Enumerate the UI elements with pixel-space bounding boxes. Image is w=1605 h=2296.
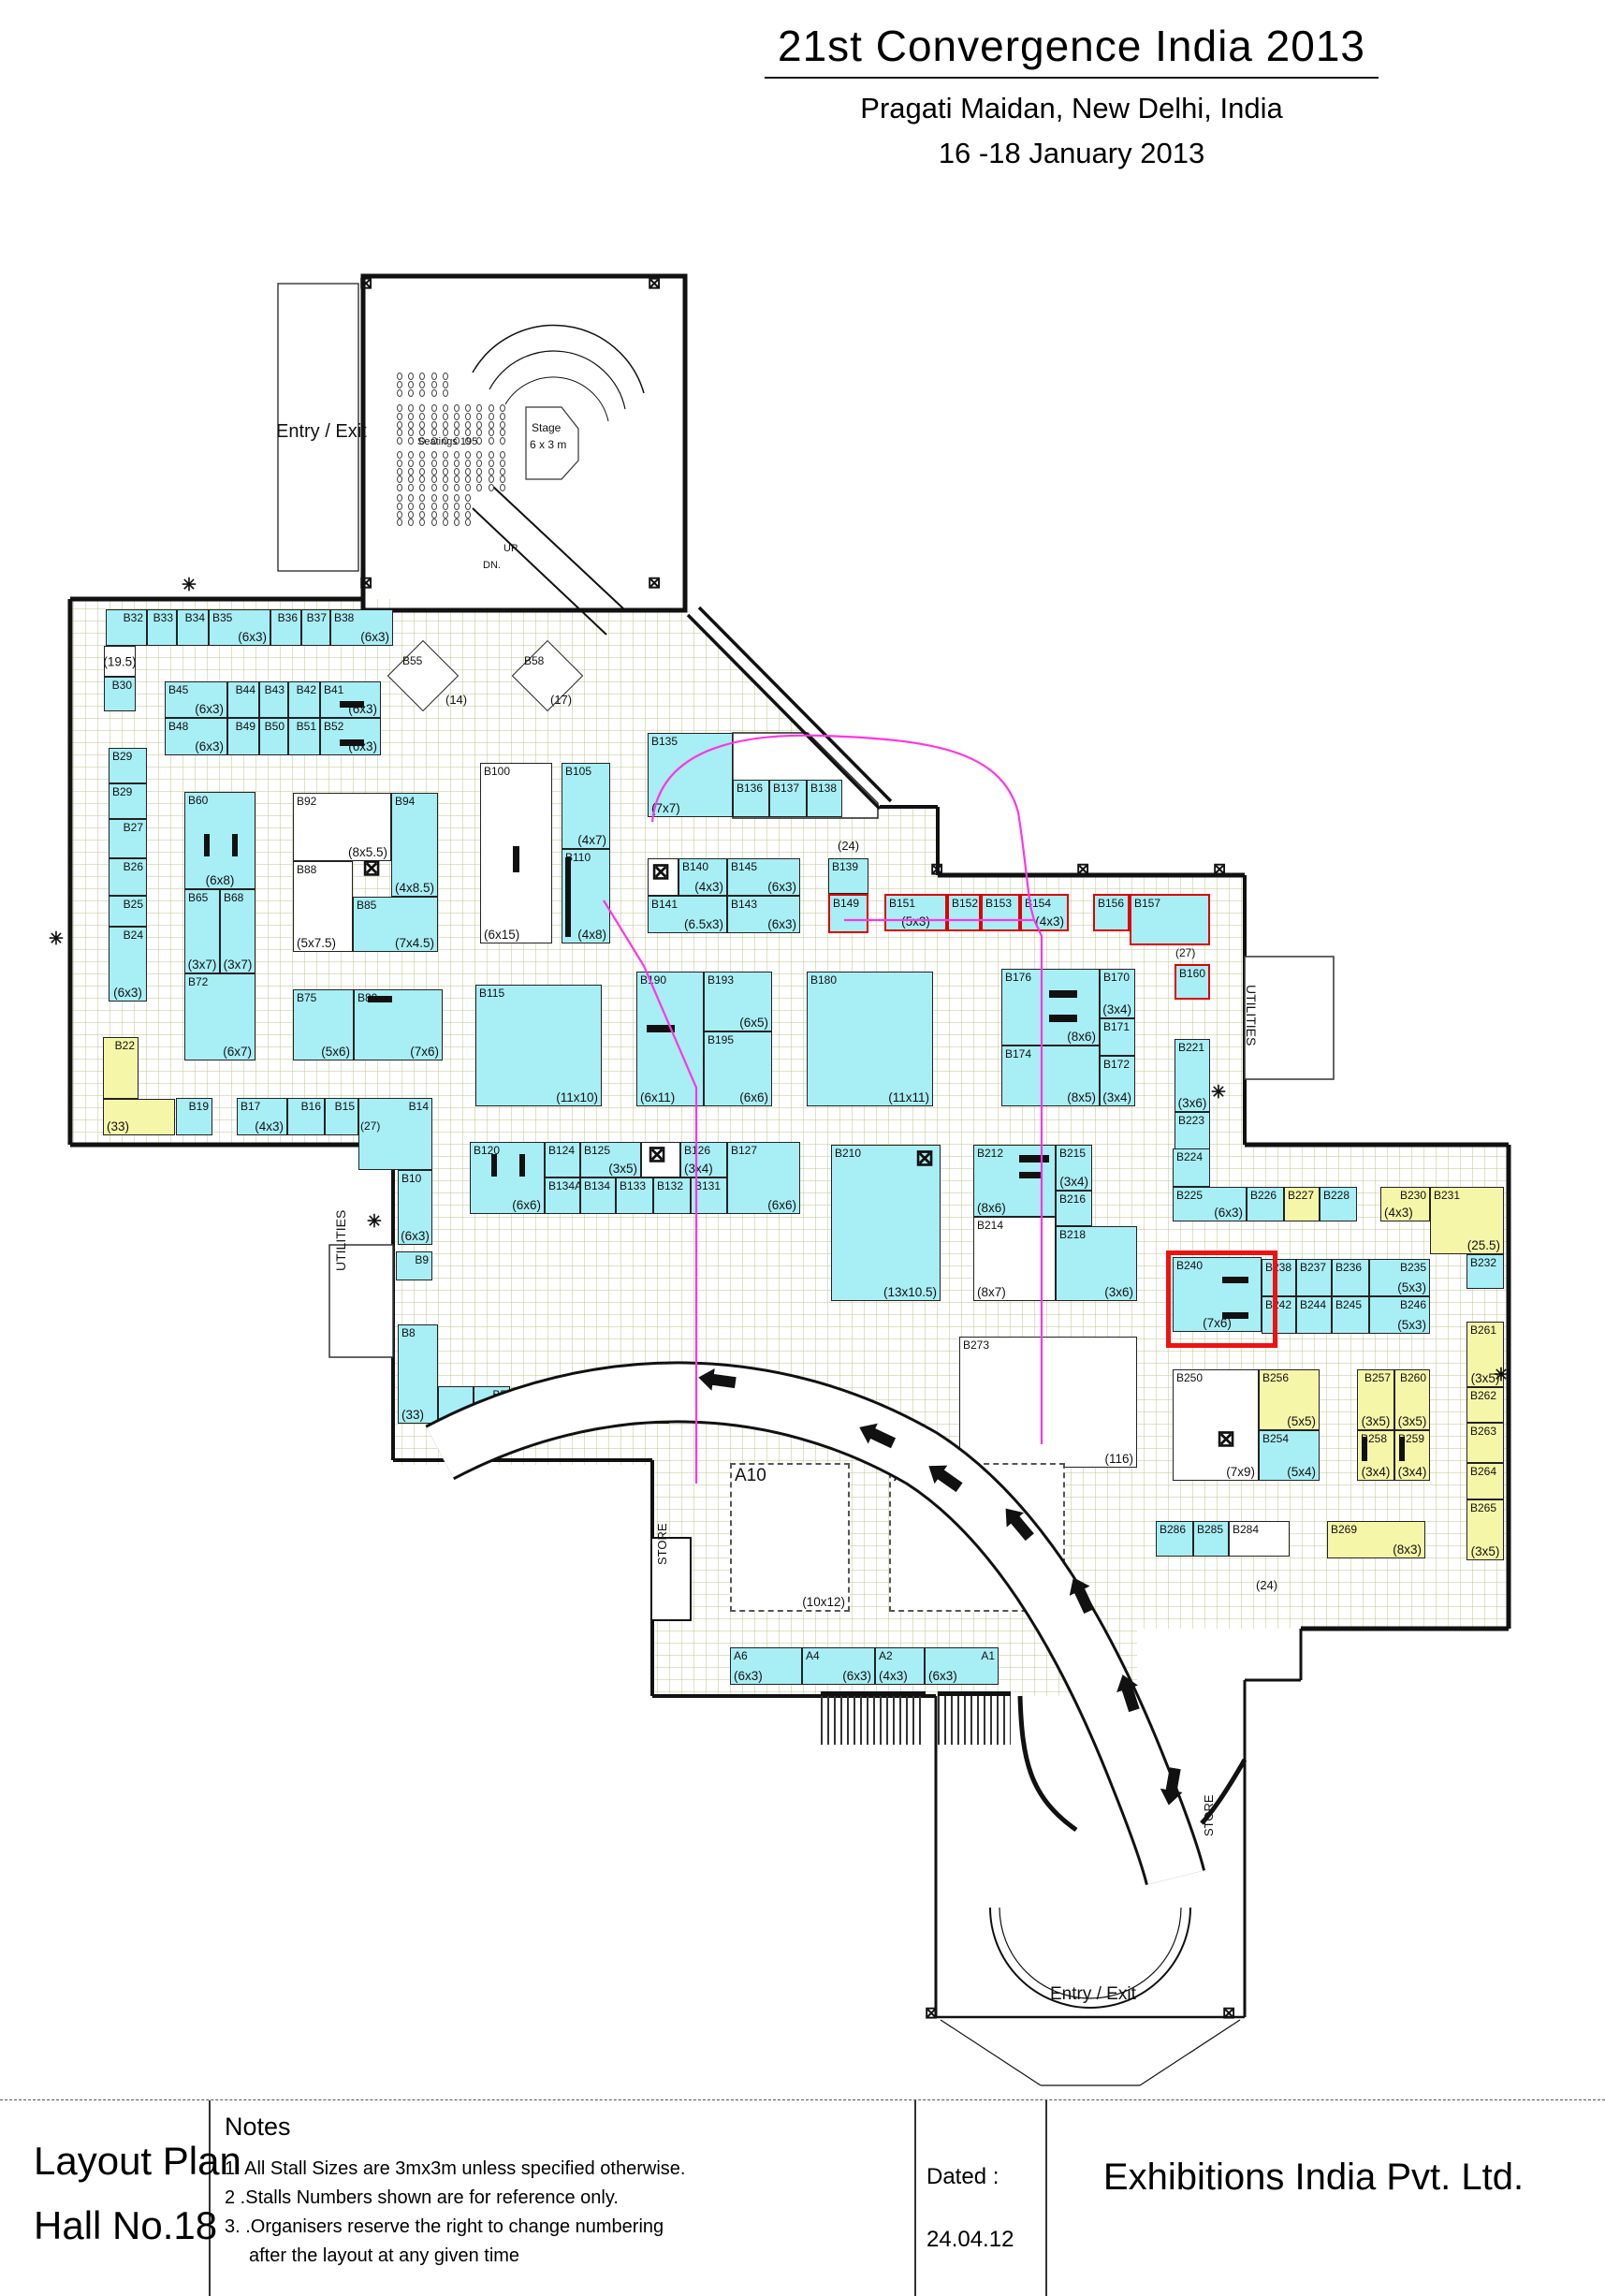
stall-B120: B120(6x6) (470, 1142, 545, 1214)
footer-dated: Dated : 24.04.12 (927, 2145, 1034, 2271)
seat-icon (465, 503, 471, 510)
stall-B262: B262 (1466, 1387, 1504, 1423)
plan-label-b58: B58 (524, 654, 544, 667)
stall-A6: A6(6x3) (730, 1647, 802, 1685)
footer-divider (914, 2100, 916, 2296)
stall-size: (6x3) (360, 630, 389, 644)
stall-B29: B29 (109, 748, 147, 783)
spiral-stair-icon: ✳ (1211, 1084, 1226, 1102)
stall-B285: B285 (1193, 1521, 1229, 1557)
stall-id: B60 (188, 794, 208, 807)
seat-icon (397, 381, 402, 388)
seat-icon (408, 460, 414, 467)
seat-icon (500, 451, 505, 459)
stall-id: A10 (735, 1466, 766, 1486)
stall-size: (5x4) (1287, 1465, 1316, 1479)
stall-size: (5x3) (1397, 1318, 1426, 1332)
stall-B157: B157 (1130, 894, 1210, 945)
partition-mark (1399, 1437, 1405, 1461)
stall-B134A: B134A (545, 1177, 580, 1214)
stall-size: (8x6) (977, 1201, 1006, 1215)
wall-pillar-icon: ⊠ (359, 275, 372, 291)
wall-pillar-icon: ⊠ (359, 575, 372, 591)
stall-id: B10 (401, 1172, 421, 1185)
stall-A4: A4(6x3) (802, 1647, 875, 1685)
stall-id: B152 (952, 897, 978, 910)
layout-plan-canvas: 21st Convergence India 2013 Pragati Maid… (0, 0, 1605, 2296)
stall-B246: B246(5x3) (1369, 1296, 1430, 1334)
stall-B263: B263 (1466, 1423, 1504, 1463)
stall-id: B210 (835, 1147, 861, 1160)
stall-size: (3x5) (1398, 1414, 1427, 1428)
stall-B231: B231(25.5) (1430, 1187, 1504, 1254)
stall-B45: B45(6x3) (165, 681, 227, 718)
stall-id: B171 (1103, 1020, 1130, 1033)
stall-B215: B215(3x4) (1056, 1145, 1092, 1191)
stall-id: B260 (1400, 1371, 1426, 1384)
seat-icon (443, 484, 448, 491)
stall-B15: B15 (325, 1098, 358, 1135)
stall-size: (3x5) (599, 1408, 628, 1422)
seat-icon (431, 468, 437, 475)
stall-id: B145 (731, 860, 757, 873)
stall-size: (7x7) (651, 801, 680, 815)
plan-label-entry-exit: Entry / Exit (1050, 1984, 1136, 2005)
stall-B29: B29 (109, 783, 147, 819)
stall-B52: B52(6x3) (320, 718, 381, 755)
seat-icon (454, 460, 460, 467)
pillar-icon: ⊠ (651, 861, 670, 884)
stall-B22: B22 (103, 1037, 139, 1099)
stall-B50: B50 (259, 718, 288, 755)
stall-size: (4x3) (694, 880, 723, 894)
stall-size: (3x4) (1362, 1465, 1391, 1479)
seat-icon (454, 451, 460, 459)
stall-B135: B135(7x7) (648, 733, 733, 817)
stall-B176: B176(8x6) (1001, 969, 1100, 1046)
stall-B154: B154(4x3) (1020, 894, 1069, 931)
stall-size: (6x3) (734, 1669, 763, 1683)
seat-icon (431, 519, 437, 526)
stall-B51: B51 (288, 718, 320, 755)
stall-id: B132 (657, 1179, 683, 1192)
stall-B141: B141(6.5x3) (648, 896, 727, 933)
stall-id: B2 (575, 1388, 589, 1401)
seat-icon (408, 413, 414, 420)
stall-B17: B17(4x3) (237, 1098, 287, 1135)
stall-id: B180 (810, 973, 837, 987)
stall-id: B29 (112, 750, 132, 763)
seat-icon (500, 437, 505, 445)
stall-B131: B131 (691, 1177, 727, 1214)
stall-id: B92 (297, 795, 316, 808)
seat-icon (443, 413, 448, 420)
stall-id: B221 (1178, 1041, 1204, 1054)
seat-icon (465, 511, 471, 519)
plan-label-dn-: DN. (483, 560, 501, 571)
stall-B2: B2(3x5) (571, 1386, 632, 1424)
stall-id: A2 (879, 1649, 893, 1662)
stall-B260: B260(3x5) (1394, 1369, 1430, 1430)
seat-icon (408, 511, 414, 519)
stall-id: B156 (1098, 897, 1124, 910)
partition-mark (1049, 1015, 1077, 1022)
seat-icon (431, 404, 437, 412)
stall-id: B17 (241, 1100, 260, 1113)
stall-B284: B284 (1229, 1521, 1290, 1557)
note-3: 3. .Organisers reserve the right to chan… (225, 2213, 685, 2242)
stall-B35: B35(6x3) (209, 609, 270, 646)
stall-size: (4x7) (577, 833, 606, 847)
seat-icon (489, 437, 494, 445)
pillar-icon: ⊠ (915, 1148, 934, 1170)
plan-label-b55: B55 (402, 654, 422, 667)
stall-size: (3x4) (1102, 1002, 1131, 1016)
seat-icon (443, 381, 448, 388)
stall-B227: B227 (1284, 1187, 1320, 1221)
stall-id: B256 (1262, 1371, 1289, 1384)
partition-mark (565, 857, 571, 937)
stall-id: B126 (684, 1144, 710, 1157)
stall-B171: B171 (1100, 1018, 1135, 1056)
stall-size: (6x3) (928, 1669, 957, 1683)
plan-label--27-: (27) (360, 1119, 380, 1133)
stall-id: B38 (334, 611, 354, 624)
seat-icon (500, 468, 505, 475)
seat-icon (443, 389, 448, 397)
stall-id: B149 (833, 897, 859, 910)
seat-icon (431, 494, 437, 502)
seat-icon (443, 404, 448, 412)
stall-size: (3x4) (684, 1162, 713, 1176)
stall-size: (11x10) (556, 1090, 598, 1104)
stall-id: B136 (737, 782, 763, 795)
stall-B75: B75(5x6) (293, 989, 354, 1060)
stall-id: B285 (1197, 1523, 1223, 1536)
seat-icon (431, 460, 437, 467)
footer-title-line1: Layout Plan (34, 2128, 241, 2193)
stall-id: B134 (584, 1179, 610, 1192)
stall-id: B237 (1300, 1261, 1326, 1274)
stall-id: B105 (565, 765, 591, 778)
stall-id: B216 (1059, 1192, 1086, 1206)
stall-B26: B26 (109, 858, 147, 896)
stall-id: B228 (1323, 1189, 1350, 1202)
stall-size: (5x6) (321, 1045, 350, 1059)
stall-size: (116) (1104, 1452, 1133, 1466)
stall-B133: B133 (616, 1177, 653, 1214)
stall-size: (6x3) (401, 1229, 430, 1243)
plan-label-utilities: UTILITIES (1244, 985, 1259, 1046)
stall-B218: B218(3x6) (1056, 1226, 1137, 1301)
partition-mark (1049, 990, 1077, 998)
stall-B152: B152 (947, 894, 981, 931)
stall-id: B36 (278, 611, 298, 624)
stall-B224: B224 (1173, 1148, 1210, 1187)
stall-id: B127 (731, 1144, 757, 1157)
partition-mark (1362, 1437, 1367, 1461)
plan-label-store: STORE (1202, 1794, 1216, 1836)
stall-id: B34 (185, 611, 205, 624)
pillar-icon: ⊠ (362, 857, 381, 880)
stall-B216: B216 (1056, 1191, 1092, 1226)
stall-id: B244 (1300, 1298, 1326, 1311)
plan-label--24-: (24) (838, 839, 859, 853)
partition-mark (519, 1154, 525, 1177)
stall-id: B32 (124, 611, 143, 624)
stall-id: B193 (708, 973, 734, 987)
stall-id: B172 (1103, 1058, 1130, 1071)
stall-id: B133 (620, 1179, 646, 1192)
stall-id: B43 (265, 683, 285, 696)
stall-id: B269 (1331, 1523, 1357, 1536)
stall-B38: B38(6x3) (330, 609, 393, 646)
stall-id: B245 (1335, 1298, 1362, 1311)
stall-B48: B48(6x3) (165, 718, 227, 755)
stall-size: (3x5) (1362, 1414, 1391, 1428)
stall-B72: B72(6x7) (184, 973, 255, 1060)
footer-company: Exhibitions India Pvt. Ltd. (1045, 2157, 1582, 2199)
seat-icon (443, 511, 448, 519)
stall-B149: B149 (828, 894, 868, 933)
seat-icon (454, 494, 460, 502)
partition-mark (1019, 1155, 1049, 1163)
stall-B110: B110(4x8) (562, 849, 610, 943)
seat-icon (454, 421, 460, 429)
seat-icon (397, 404, 402, 412)
stall-size: (5x5) (1287, 1414, 1316, 1428)
seat-icon (489, 475, 494, 483)
stall-id: B26 (124, 860, 143, 873)
stall-id: B154 (1025, 897, 1051, 910)
stall-id: B115 (479, 987, 504, 1000)
partition-mark (340, 701, 364, 708)
stall-B286: B286 (1156, 1521, 1193, 1557)
stall-B254: B254(5x4) (1259, 1430, 1320, 1481)
stall-id: B45 (168, 683, 188, 696)
seat-icon (454, 413, 460, 420)
stall-size: (3x4) (1102, 1090, 1131, 1104)
plan-label-utilities: UTILITIES (333, 1210, 348, 1271)
stall-id: B176 (1005, 971, 1031, 984)
stall-B80: B80(7x6) (354, 989, 443, 1060)
wall-pillar-icon: ⊠ (1076, 861, 1089, 877)
stall-B1: B1 (632, 1386, 669, 1424)
seat-icon (489, 404, 494, 412)
stall-id: B14 (409, 1100, 429, 1113)
stall-size: (3x5) (608, 1162, 637, 1176)
stall-id: B37 (307, 611, 327, 624)
seat-icon (431, 373, 437, 380)
stall-size: (6x3) (842, 1669, 871, 1683)
stall-id: B134A (548, 1179, 582, 1192)
stall-id: B44 (236, 683, 255, 696)
stall-id: B257 (1364, 1371, 1391, 1384)
wall-pillar-icon: ⊠ (1213, 861, 1226, 877)
plan-label-up: UP (503, 543, 518, 554)
stall-size: (11x11) (888, 1090, 929, 1104)
stall-id: B174 (1005, 1047, 1031, 1060)
stall-B145: B145(6x3) (727, 858, 800, 896)
seat-icon (443, 451, 448, 459)
stall-id: B51 (297, 720, 316, 733)
stall-B170: B170(3x4) (1100, 969, 1135, 1018)
stall-size: (8x5) (1067, 1090, 1096, 1104)
seat-icon (500, 421, 505, 429)
partition-mark (491, 1154, 497, 1177)
stall-size: (5x3) (901, 914, 930, 929)
seat-icon (465, 468, 471, 475)
stall-area: (19.5) (104, 646, 136, 677)
stall-id: B124 (548, 1144, 575, 1157)
stall-id: B35 (212, 611, 232, 624)
stall-B250: B250(7x9) (1173, 1369, 1259, 1481)
stall-id: B157 (1134, 897, 1160, 910)
stall-B143: B143(6x3) (727, 896, 800, 933)
stall-B265: B265(3x5) (1466, 1499, 1504, 1560)
wall-pillar-icon: ⊠ (648, 575, 661, 591)
stall-id: B254 (1262, 1432, 1289, 1445)
seat-icon (397, 503, 402, 510)
seat-icon (397, 451, 402, 459)
footer: Layout Plan Hall No.18 Notes 1. All Stal… (0, 2099, 1605, 2296)
stall-size: (19.5) (103, 654, 136, 668)
stall-B24: B24(6x3) (109, 927, 147, 1002)
stall-id: B153 (985, 897, 1012, 910)
seat-icon (489, 413, 494, 420)
stall-size: (6x3) (1214, 1206, 1243, 1220)
plan-label-entry-exit: Entry / Exit (276, 421, 367, 443)
stall-size: (3x4) (1059, 1175, 1088, 1189)
seat-icon (443, 460, 448, 467)
seat-icon (500, 460, 505, 467)
header: 21st Convergence India 2013 Pragati Maid… (543, 21, 1600, 170)
stall-B140: B140(4x3) (678, 858, 727, 896)
wall-pillar-icon: ⊠ (1222, 2005, 1235, 2021)
stall-B151: B151(5x3) (884, 894, 947, 931)
stall-B3: B3 (535, 1386, 571, 1424)
stall-B100: B100(6x15) (480, 763, 552, 943)
seat-icon (431, 475, 437, 483)
stall-size: (13x10.5) (883, 1285, 937, 1299)
stall-B226: B226 (1247, 1187, 1284, 1221)
seat-icon (500, 413, 505, 420)
stall-B19: B19 (176, 1098, 212, 1135)
stall-id: B232 (1470, 1256, 1496, 1269)
stall-size: (7x4.5) (395, 936, 434, 950)
stall-size: (150) (1030, 1595, 1060, 1609)
seat-icon (443, 503, 448, 510)
vestibule-hatch (821, 1691, 926, 1745)
stall-id: B236 (1335, 1261, 1362, 1274)
stall-B160: B160 (1175, 964, 1210, 1000)
stall-id: B143 (731, 898, 757, 911)
stall-size: (7x6) (410, 1045, 439, 1059)
seat-icon (431, 484, 437, 491)
stall-id: B85 (357, 899, 376, 912)
stall-B232: B232 (1466, 1254, 1504, 1289)
stall-id: B261 (1470, 1323, 1496, 1337)
stall-area: (33) (103, 1099, 175, 1135)
stall-id: B140 (682, 860, 708, 873)
stall-size: (25.5) (1467, 1238, 1500, 1252)
stall-id: B16 (301, 1100, 321, 1113)
vestibule-hatch (938, 1691, 1011, 1745)
plan-label--27-: (27) (1175, 946, 1195, 959)
wall-pillar-icon: ⊠ (648, 275, 661, 291)
partition-mark (232, 834, 238, 856)
stalls-layer: B32B33B34B35(6x3)B36B37B38(6x3)(19.5)B30… (0, 0, 1605, 2296)
stall-B65: B65(3x7) (184, 889, 220, 973)
stall-id: B139 (832, 860, 858, 873)
stall-B257: B257(3x5) (1357, 1369, 1394, 1430)
stall-size: (10x12) (802, 1595, 845, 1609)
stall-id: B190 (640, 973, 666, 987)
stall-id: B227 (1288, 1189, 1314, 1202)
plan-label-seatings-195: Seatings 195 (417, 436, 477, 447)
stall-B115: B115(11x10) (475, 985, 602, 1106)
stall-size: (8x6) (1067, 1030, 1096, 1044)
stall-B44: B44 (227, 681, 259, 718)
notes-heading: Notes (225, 2108, 685, 2147)
stall-id: B8 (401, 1326, 416, 1339)
stall-B30: B30 (104, 677, 136, 711)
stall-B16: B16 (287, 1098, 325, 1135)
stall-id: B224 (1176, 1150, 1203, 1163)
seat-icon (465, 413, 471, 420)
stall-area (438, 1386, 474, 1424)
stall-id: B264 (1470, 1465, 1496, 1478)
stall-size: (6x3) (238, 630, 267, 644)
stall-id: B19 (189, 1100, 209, 1113)
stall-B235: B235(5x3) (1369, 1259, 1430, 1296)
stall-id: B235 (1400, 1261, 1426, 1274)
seat-icon (489, 421, 494, 429)
stall-size: (3x5) (1471, 1544, 1500, 1558)
seat-icon (397, 511, 402, 519)
footer-notes: Notes 1. All Stall Sizes are 3mx3m unles… (225, 2108, 685, 2271)
plan-label--17-: (17) (550, 693, 572, 707)
stall-size: (3x4) (1398, 1465, 1427, 1479)
stall-B25: B25 (109, 896, 147, 927)
stall-size: (5x7.5) (297, 936, 336, 950)
stall-B105: B105(4x7) (562, 763, 610, 849)
seat-icon (454, 503, 460, 510)
stall-A2: A2(4x3) (875, 1647, 925, 1685)
stall-B88: B88(5x7.5) (293, 861, 353, 952)
stall-id: B94 (395, 795, 415, 808)
wall-pillar-icon: ⊠ (930, 861, 943, 877)
stall-B153: B153 (981, 894, 1020, 931)
seat-icon (443, 468, 448, 475)
stall-id: B231 (1434, 1189, 1460, 1202)
stall-B43: B43 (259, 681, 288, 718)
pillar-icon: ⊠ (1217, 1428, 1235, 1451)
stall-size: (7x9) (1226, 1465, 1255, 1479)
highlight-box-B240 (1166, 1250, 1277, 1348)
stall-B236: B236 (1332, 1259, 1369, 1296)
stall-size: (6x3) (113, 986, 142, 1000)
stall-size: (6x15) (484, 928, 519, 942)
seat-icon (465, 460, 471, 467)
seat-icon (489, 468, 494, 475)
seat-icon (431, 511, 437, 519)
seat-icon (454, 511, 460, 519)
stall-B127: B127(6x6) (727, 1142, 800, 1214)
stall-B49: B49 (227, 718, 259, 755)
seat-icon (489, 484, 494, 491)
stall-id: B214 (977, 1219, 1003, 1232)
